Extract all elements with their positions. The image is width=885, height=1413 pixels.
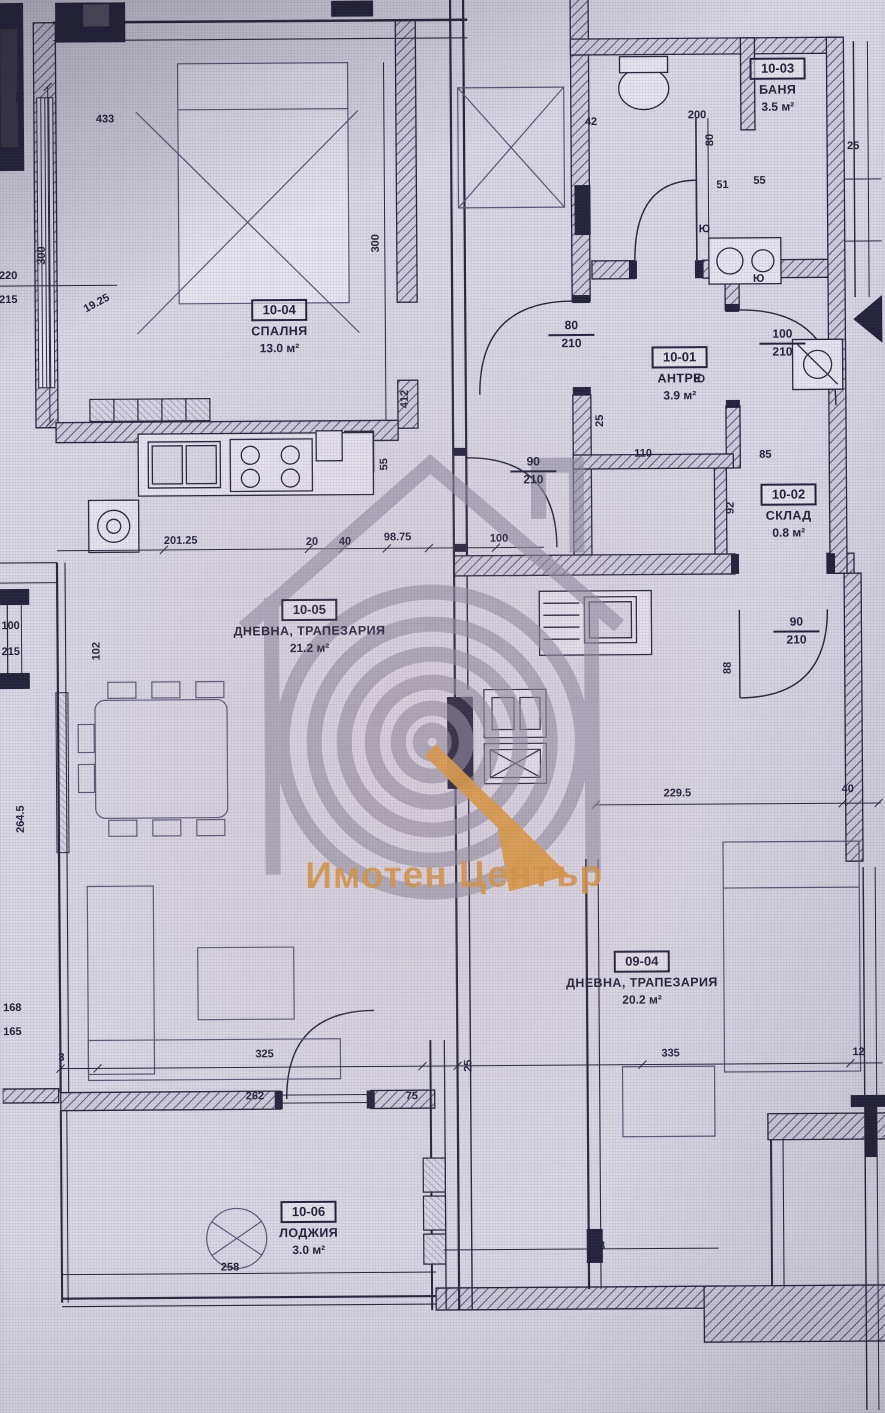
door-size-label: 100 210 bbox=[759, 327, 805, 359]
dimension-label: 98.75 bbox=[384, 532, 412, 543]
dimension-label: 92 bbox=[726, 502, 737, 514]
dimension-label: 42 bbox=[585, 117, 597, 128]
dimension-label: 85 bbox=[759, 450, 771, 461]
room-label-hallway: 10-01 АНТРЕ 3.9 м² bbox=[589, 346, 769, 403]
door-size-label: 80 210 bbox=[548, 319, 594, 351]
door-width: 90 bbox=[510, 455, 556, 472]
room-name: ЛОДЖИЯ bbox=[209, 1225, 409, 1241]
dimension-label: 325 bbox=[255, 1049, 273, 1060]
dimension-label: 201.25 bbox=[164, 536, 198, 547]
dimension-label: 215 bbox=[2, 647, 20, 658]
dimension-label: 12 bbox=[852, 1047, 864, 1058]
room-area: 20.2 м² bbox=[512, 991, 772, 1007]
dimension-label: 25 bbox=[595, 415, 606, 427]
dimension-label: 100 bbox=[1, 621, 19, 632]
room-area: 3.5 м² bbox=[688, 99, 868, 115]
dimension-label: 300 bbox=[37, 246, 48, 264]
room-id: 10-02 bbox=[761, 483, 816, 505]
room-id: 10-03 bbox=[750, 57, 805, 79]
dimension-label: 51 bbox=[716, 180, 728, 191]
door-size-label: 90 210 bbox=[773, 615, 819, 647]
dimension-label: 215 bbox=[0, 295, 18, 306]
dimension-label: 264.5 bbox=[16, 805, 27, 833]
dimension-label: 40 bbox=[339, 537, 351, 548]
room-area: 3.9 м² bbox=[590, 387, 770, 403]
room-label-living-dining-1: 10-05 ДНЕВНА, ТРАПЕЗАРИЯ 21.2 м² bbox=[179, 598, 439, 656]
dimension-label: 55 bbox=[379, 458, 390, 470]
room-name: АНТРЕ bbox=[590, 370, 770, 386]
room-area: 13.0 м² bbox=[179, 340, 379, 356]
appliance-code-label: Ю bbox=[699, 224, 710, 235]
room-id: 09-04 bbox=[614, 950, 669, 972]
room-label-loggia: 10-06 ЛОДЖИЯ 3.0 м² bbox=[208, 1200, 408, 1257]
dimension-label: 303 bbox=[587, 1241, 605, 1252]
dimension-label: 258 bbox=[221, 1262, 239, 1273]
dimension-label: 3 bbox=[58, 1053, 64, 1064]
room-name: БАНЯ bbox=[688, 82, 868, 98]
appliance-code-label: Ю bbox=[753, 274, 764, 285]
screen-photo-of-floor-plan: Имотен Център 10-03 БАНЯ 3.5 м² 10-04 СП… bbox=[0, 0, 885, 1413]
room-label-living-dining-2: 09-04 ДНЕВНА, ТРАПЕЗАРИЯ 20.2 м² bbox=[512, 950, 772, 1008]
dimension-label: 79 bbox=[16, 91, 27, 103]
room-area: 3.0 м² bbox=[209, 1242, 409, 1258]
dimension-label: 300 bbox=[371, 234, 382, 252]
dimension-label: 100 bbox=[490, 534, 508, 545]
dimension-label: 25 bbox=[847, 141, 859, 152]
door-size-label: 90 210 bbox=[510, 455, 556, 487]
room-area: 0.8 м² bbox=[699, 525, 879, 541]
door-height: 210 bbox=[773, 632, 819, 647]
room-name: ДНЕВНА, ТРАПЕЗАРИЯ bbox=[179, 623, 439, 640]
dimension-label: 110 bbox=[634, 449, 652, 460]
door-height: 210 bbox=[759, 344, 805, 359]
appliance-code-label: Ю bbox=[694, 374, 705, 385]
door-height: 210 bbox=[548, 336, 594, 351]
floor-plan-sheet: Имотен Център 10-03 БАНЯ 3.5 м² 10-04 СП… bbox=[0, 0, 885, 1413]
room-id: 10-05 bbox=[282, 599, 337, 621]
dimension-label: 433 bbox=[96, 114, 114, 125]
dimension-label: 168 bbox=[3, 1003, 21, 1014]
floor-plan-drawing bbox=[0, 0, 885, 1413]
room-name: СПАЛНЯ bbox=[179, 323, 379, 339]
dimension-label: 335 bbox=[661, 1048, 679, 1059]
room-id: 10-06 bbox=[281, 1201, 336, 1223]
door-width: 90 bbox=[773, 615, 819, 632]
dimension-label: 412 bbox=[400, 390, 411, 408]
room-id: 10-04 bbox=[252, 299, 307, 321]
room-id: 10-01 bbox=[652, 346, 707, 368]
dimension-label: 229.5 bbox=[664, 788, 692, 799]
room-name: ДНЕВНА, ТРАПЕЗАРИЯ bbox=[512, 974, 772, 991]
dimension-label: 200 bbox=[688, 110, 706, 121]
dimension-label: 25 bbox=[463, 1060, 474, 1072]
door-height: 210 bbox=[510, 472, 556, 487]
dimension-label: 40 bbox=[842, 784, 854, 795]
dimension-label: 75 bbox=[406, 1091, 418, 1102]
room-area: 21.2 м² bbox=[180, 640, 440, 656]
dimension-label: 102 bbox=[92, 642, 103, 660]
door-width: 100 bbox=[759, 327, 805, 344]
dimension-label: 80 bbox=[705, 134, 716, 146]
dimension-label: 88 bbox=[723, 662, 734, 674]
dimension-label: 262 bbox=[246, 1091, 264, 1102]
dimension-label: 55 bbox=[753, 176, 765, 187]
room-label-bathroom: 10-03 БАНЯ 3.5 м² bbox=[687, 57, 867, 114]
dimension-label: 220 bbox=[0, 271, 17, 282]
dimension-label: 20 bbox=[306, 537, 318, 548]
dimension-label: 165 bbox=[3, 1027, 21, 1038]
room-label-bedroom: 10-04 СПАЛНЯ 13.0 м² bbox=[179, 298, 379, 355]
door-width: 80 bbox=[548, 319, 594, 336]
